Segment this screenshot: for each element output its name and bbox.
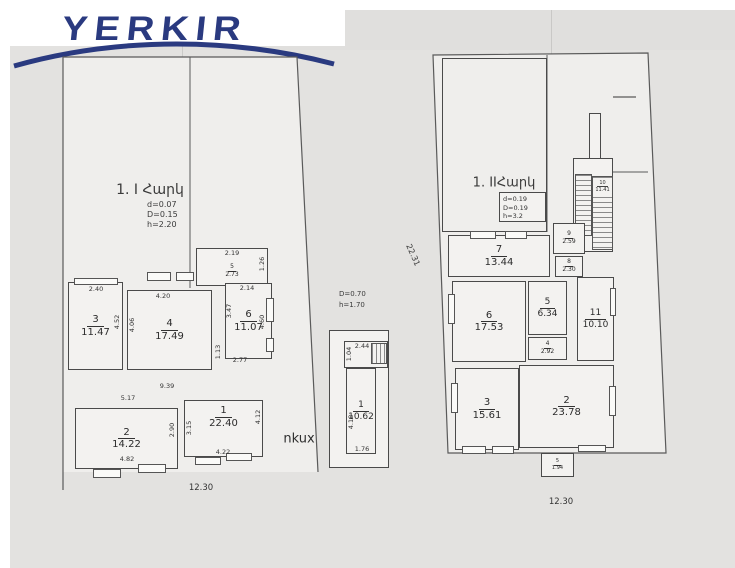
window (609, 386, 616, 416)
room-number: 2 (558, 395, 574, 408)
floor1-params: d=0.07 D=0.15 h=2.20 (147, 200, 178, 230)
window (448, 294, 455, 324)
room-number: 10 (597, 180, 607, 187)
dim-label: 4.20 (156, 292, 170, 300)
floor2-params: d=0.19 D=0.19 h=3.2 (499, 192, 546, 222)
room-f2-7: 7 13.44 (448, 235, 550, 277)
dim-label: 2.44 (355, 342, 369, 350)
window (470, 231, 496, 239)
dim-label: 3.47 (225, 304, 233, 318)
window (195, 457, 221, 465)
dim-label: 1.04 (345, 347, 353, 361)
dim-label: 5.17 (121, 394, 135, 402)
dim-label: 4.12 (254, 410, 262, 424)
floor1-param-D: D=0.15 (147, 210, 178, 220)
room-area: 10.10 (583, 320, 609, 330)
window (93, 469, 121, 478)
dim-label-total: 12.30 (189, 483, 213, 493)
room-area: 13.44 (485, 257, 514, 269)
window (610, 288, 616, 316)
room-number: 5 (540, 297, 556, 308)
room-area: 2.92 (541, 349, 554, 356)
basement-param-D: D=0.70 (339, 289, 366, 300)
window (578, 445, 606, 452)
room-area: 17.49 (155, 331, 184, 343)
dim-label: 4.52 (113, 315, 121, 329)
floor2-param-D: D=0.19 (503, 204, 542, 213)
floor1-title: 1. I Հարկ (116, 182, 184, 198)
room-f2-4: 4 2.92 (528, 337, 567, 360)
basement-params: D=0.70 h=1.70 (339, 289, 366, 311)
room-number: 4 (161, 318, 177, 331)
room-number: 1 (353, 400, 369, 411)
floor1-param-d: d=0.07 (147, 200, 178, 210)
room-number: 3 (479, 397, 495, 410)
room-f1-4: 4 17.49 (127, 290, 212, 370)
floor2-param-d: d=0.19 (503, 195, 542, 204)
window (176, 272, 194, 281)
dim-label: 9.39 (160, 382, 174, 390)
dim-label: 3.15 (185, 421, 193, 435)
room-area: 11.41 (595, 187, 609, 193)
scanned-floorplan-sheet: YERKIR 1. I Հարկ d=0.07 D=0.15 h=2.20 5 … (0, 0, 735, 568)
basement-stairs (371, 343, 387, 364)
dim-label: 4.82 (120, 455, 134, 463)
room-number: 6 (481, 310, 497, 323)
room-area: 2.59 (562, 239, 575, 246)
window (74, 278, 118, 285)
basement-param-h: h=1.70 (339, 300, 366, 311)
room-area: 17.53 (475, 322, 504, 334)
dim-label: 4.22 (216, 448, 230, 456)
room-area: 23.78 (552, 407, 581, 419)
dim-label-total: 12.30 (549, 497, 573, 507)
window (266, 298, 274, 322)
room-f2-5: 5 6.34 (528, 281, 567, 335)
room-f2-3: 3 15.61 (455, 368, 519, 450)
dim-label: 1.13 (214, 345, 222, 359)
dim-label: 2.19 (225, 249, 239, 257)
room-basement-1: 1 10.62 (346, 368, 376, 454)
dim-label: 4.18 (347, 415, 355, 429)
window (147, 272, 171, 281)
window (451, 383, 458, 413)
floor2-param-h: h=3.2 (503, 212, 542, 221)
room-number: 11 (585, 308, 606, 319)
window (266, 338, 274, 352)
room-number: 1 (215, 405, 231, 418)
room-number: 2 (118, 427, 134, 440)
room-f2-6: 6 17.53 (452, 281, 526, 362)
room-area: 6.34 (537, 309, 557, 319)
window (505, 231, 527, 239)
room-f2-balcony: 5 1.94 (541, 453, 574, 477)
floor1-param-h: h=2.20 (147, 220, 178, 230)
room-number: 7 (491, 244, 507, 257)
floor2-title: 1. IIՀարկ (473, 176, 536, 191)
room-area: 11.47 (81, 327, 110, 339)
room-f2-2: 2 23.78 (519, 365, 614, 448)
room-area: 14.22 (112, 439, 141, 451)
dim-label: 2.14 (240, 284, 254, 292)
window (492, 446, 514, 454)
dim-label: 2.90 (168, 423, 176, 437)
room-area: 22.40 (209, 418, 238, 430)
room-area: 1.94 (552, 466, 563, 472)
room-number: 6 (240, 309, 256, 322)
dim-label: 1.26 (258, 257, 266, 271)
window (138, 464, 166, 473)
room-f2-9: 9 2.59 (553, 223, 585, 254)
basement-label: nkux (283, 432, 314, 447)
room-area: 2.73 (225, 272, 238, 279)
dim-label: 4.06 (128, 318, 136, 332)
room-f2-8: 8 2.30 (555, 256, 583, 277)
room-f2-11: 11 10.10 (577, 277, 614, 361)
room-area: 2.30 (562, 267, 575, 274)
room-number: 3 (87, 314, 103, 327)
dim-label: 2.40 (89, 285, 103, 293)
window (462, 446, 486, 454)
dim-label: 1.76 (355, 445, 369, 453)
dim-label: 4.60 (258, 315, 266, 329)
dim-label: 2.77 (233, 356, 247, 364)
room-f2-10: 10 11.41 (593, 179, 612, 194)
room-area: 15.61 (473, 410, 502, 422)
